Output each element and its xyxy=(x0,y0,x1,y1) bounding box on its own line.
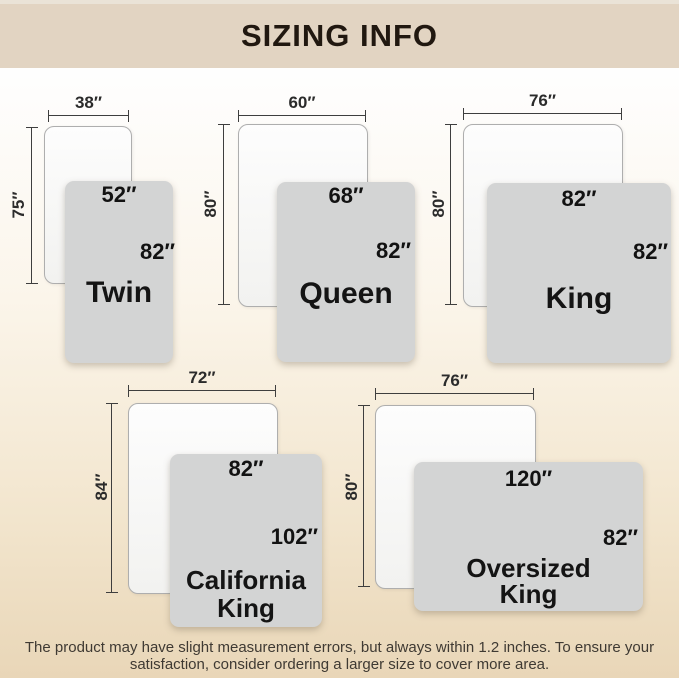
pillow-icon: ✕ xyxy=(554,270,594,297)
size-name-label: Queen xyxy=(277,277,415,311)
pillow-icon: ✕ xyxy=(114,272,157,300)
bed-length-dimension-line xyxy=(450,124,451,305)
blanket-width-label: 82″ xyxy=(170,456,322,482)
blanket-length-label: 82″ xyxy=(140,239,175,265)
blanket-width-label: 120″ xyxy=(414,466,643,492)
pillow-x-icon: ✕ xyxy=(511,276,524,291)
size-diagram-oversized-king: 76″ 80″ ✕ ✕ 120″ 82″ Oversized King xyxy=(0,0,679,678)
blanket-overlay: 68″ 82″ Queen xyxy=(277,182,415,362)
bed-length-label: 75″ xyxy=(9,175,27,235)
size-diagram-queen: 60″ 80″ ✕ ✕ 68″ 82″ Queen xyxy=(0,0,679,678)
bed-width-dimension-line xyxy=(48,115,129,116)
pillow-icon: ✕ xyxy=(495,270,539,297)
blanket-overlay: 82″ 102″ California King xyxy=(170,454,322,627)
size-diagram-king: 76″ 80″ ✕ ✕ 82″ 82″ King xyxy=(0,0,679,678)
blanket-overlay: 120″ 82″ Oversized King xyxy=(414,462,643,611)
blanket-length-label: 102″ xyxy=(271,524,318,550)
size-name-label: King xyxy=(487,282,671,316)
disclaimer-line-1: The product may have slight measurement … xyxy=(0,639,679,656)
blanket-length-label: 82″ xyxy=(633,239,668,265)
bed-width-dimension-line xyxy=(238,115,366,116)
bed-length-label: 80″ xyxy=(201,174,219,234)
blanket-width-label: 82″ xyxy=(487,186,671,212)
mattress-outline: ✕ ✕ xyxy=(238,124,368,307)
header-banner: SIZING INFO xyxy=(0,0,679,68)
page-title: SIZING INFO xyxy=(241,18,438,54)
size-name-label: Twin xyxy=(65,276,173,310)
mattress-outline: ✕ ✕ xyxy=(463,124,623,307)
size-diagram-twin: 38″ 75″ ✕ 52″ 82″ Twin xyxy=(0,0,679,678)
blanket-width-label: 52″ xyxy=(65,182,173,208)
bed-width-label: 72″ xyxy=(128,368,276,388)
sizing-info-infographic: SIZING INFO 38″ 75″ ✕ 52″ 82″ Twin 60″ 8… xyxy=(0,0,679,678)
bed-width-dimension-line xyxy=(128,390,276,391)
mattress-outline: ✕ xyxy=(44,126,132,284)
size-name-label: California King xyxy=(170,566,322,622)
bed-length-dimension-line xyxy=(111,403,112,593)
bed-width-label: 76″ xyxy=(463,91,622,111)
pillow-x-icon: ✕ xyxy=(568,276,581,291)
bed-length-dimension-line xyxy=(363,405,364,587)
mattress-outline: ✕ ✕ xyxy=(375,405,536,589)
size-name-label: Oversized King xyxy=(414,555,643,607)
bed-length-label: 80″ xyxy=(429,174,447,234)
bed-length-dimension-line xyxy=(223,124,224,305)
blanket-width-label: 68″ xyxy=(277,183,415,209)
blanket-overlay: 82″ 82″ King xyxy=(487,183,671,363)
bed-length-dimension-line xyxy=(31,127,32,284)
bed-length-label: 80″ xyxy=(342,457,360,517)
bed-width-label: 60″ xyxy=(238,93,366,113)
disclaimer-line-2: satisfaction, consider ordering a larger… xyxy=(0,656,679,673)
blanket-length-label: 82″ xyxy=(376,238,411,264)
bed-length-label: 84″ xyxy=(92,457,110,517)
bed-width-label: 76″ xyxy=(375,371,534,391)
bed-width-dimension-line xyxy=(375,393,534,394)
mattress-outline: ✕ ✕ xyxy=(128,403,278,594)
disclaimer-note: The product may have slight measurement … xyxy=(0,639,679,673)
blanket-overlay: 52″ 82″ Twin xyxy=(65,181,173,363)
blanket-length-label: 82″ xyxy=(603,525,638,551)
pillow-x-icon: ✕ xyxy=(129,279,142,294)
size-diagram-california-king: 72″ 84″ ✕ ✕ 82″ 102″ California King xyxy=(0,0,679,678)
bed-width-dimension-line xyxy=(463,113,622,114)
bed-width-label: 38″ xyxy=(48,93,129,113)
